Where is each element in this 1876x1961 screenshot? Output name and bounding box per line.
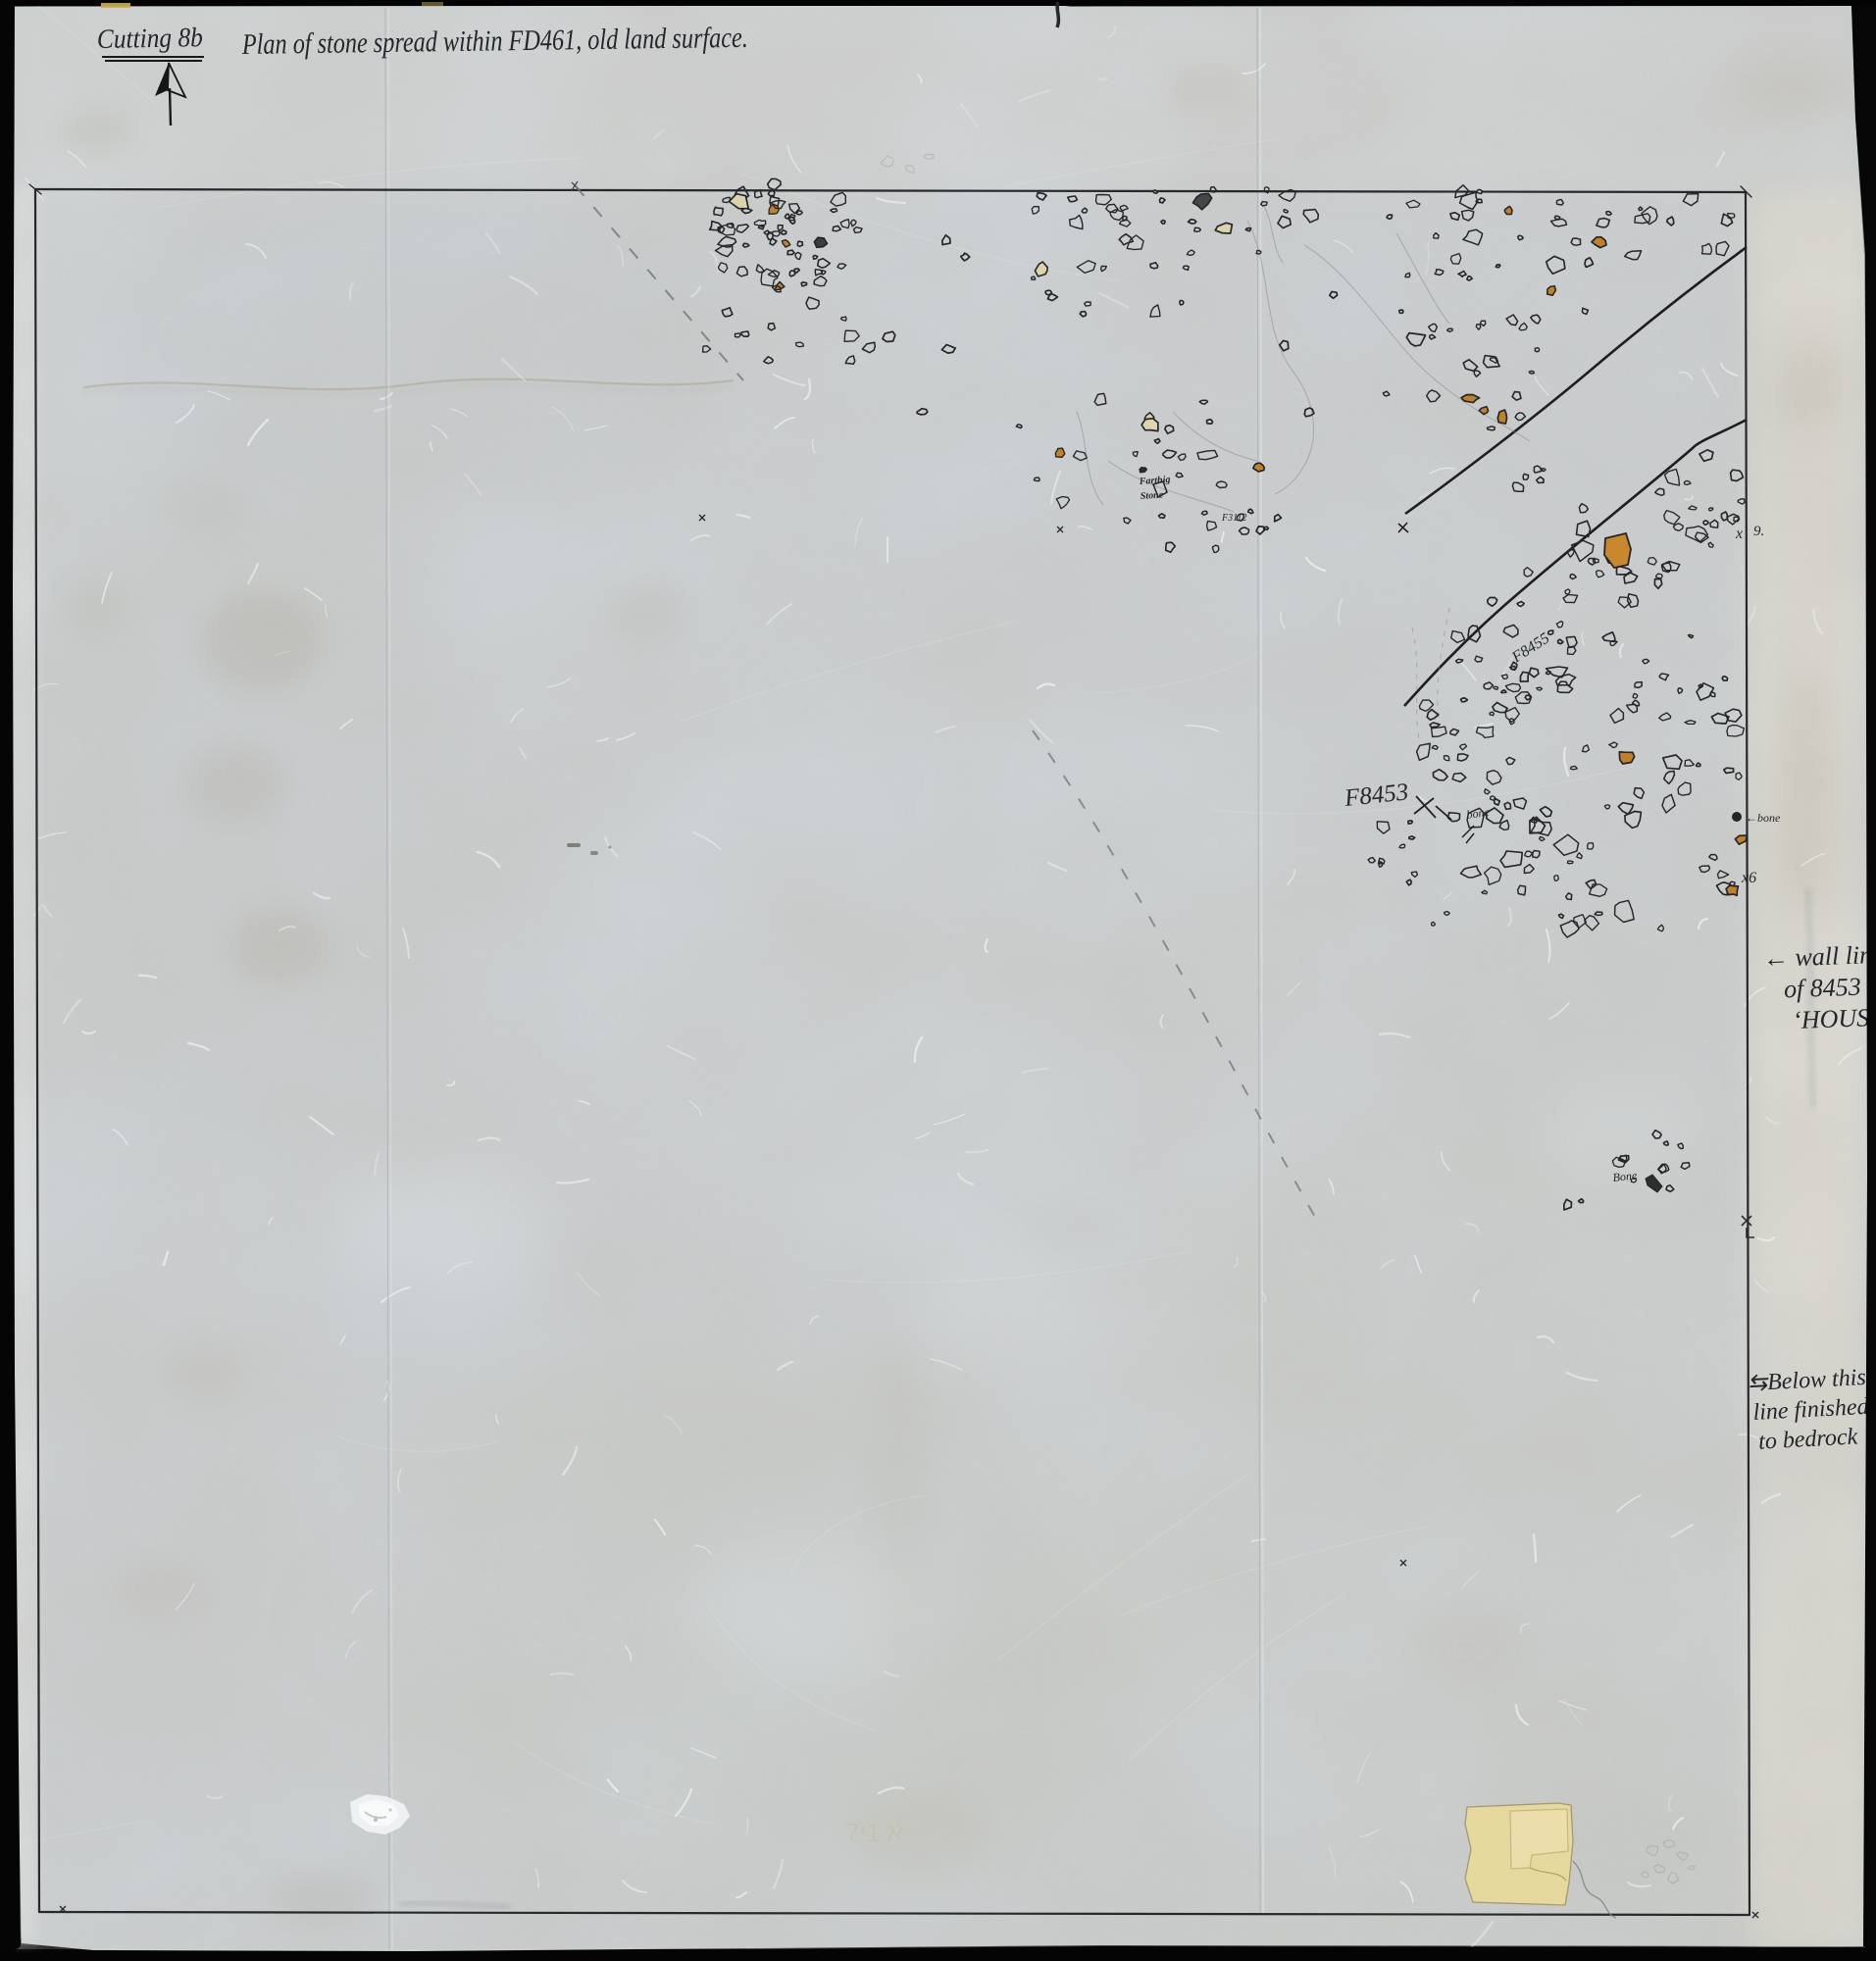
- svg-text:Farthig: Farthig: [1138, 475, 1170, 487]
- svg-text:←bone: ←bone: [1746, 811, 1781, 825]
- svg-text:x6: x6: [1741, 870, 1756, 886]
- svg-text:← wall line: ← wall line: [1762, 940, 1876, 973]
- svg-text:x: x: [1735, 526, 1743, 542]
- svg-text:א 1י7: א 1י7: [845, 1818, 903, 1847]
- svg-text:Cutting 8b: Cutting 8b: [97, 23, 204, 55]
- svg-text:9.: 9.: [1753, 524, 1764, 539]
- svg-text:Stone: Stone: [1140, 489, 1164, 502]
- svg-text:‘HOUSE’: ‘HOUSE’: [1793, 1002, 1876, 1034]
- svg-text:of 8453: of 8453: [1784, 973, 1862, 1004]
- svg-text:Bone: Bone: [1612, 1168, 1639, 1184]
- svg-text:F3112: F3112: [1221, 513, 1246, 524]
- svg-text:to bedrock: to bedrock: [1758, 1424, 1859, 1454]
